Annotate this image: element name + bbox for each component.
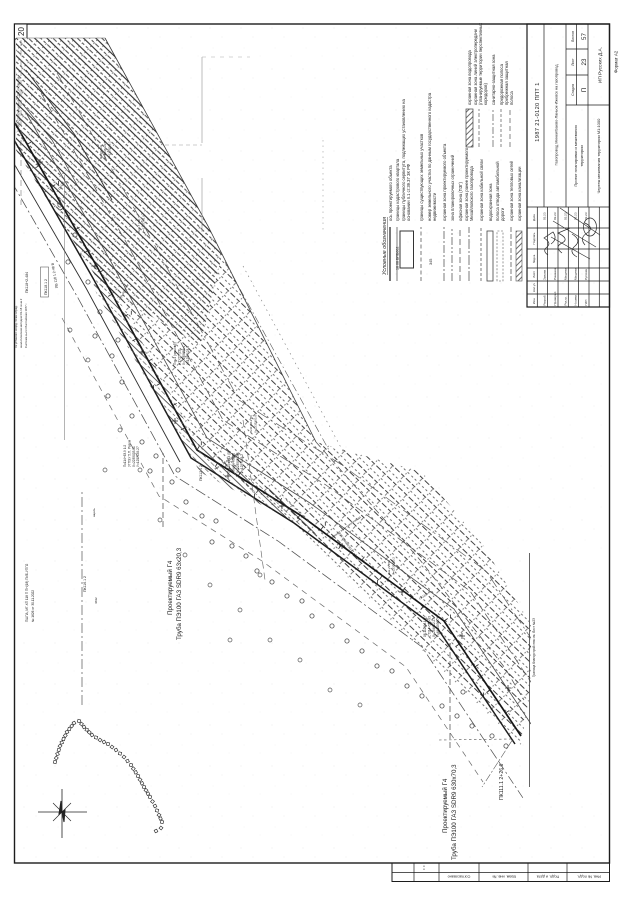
svg-text:П: П — [581, 88, 588, 92]
svg-text:недвижимости: недвижимости — [432, 192, 437, 221]
svg-text:Подпись: Подпись — [532, 232, 536, 244]
svg-text:границы существующих земельных: границы существующих земельных участков — [419, 133, 424, 221]
svg-text:345: 345 — [429, 259, 433, 265]
svg-text:Формат А2: Формат А2 — [614, 50, 619, 73]
svg-text:У=1257201.9: У=1257201.9 — [142, 215, 146, 233]
svg-text:Инв. № подл.: Инв. № подл. — [577, 875, 601, 879]
svg-text:Кол.уч: Кол.уч — [532, 283, 536, 292]
svg-text:4692: 4692 — [94, 597, 98, 604]
svg-text:дороги: дороги — [500, 207, 505, 221]
svg-text:06.112.04.1(2): 06.112.04.1(2) — [423, 617, 427, 638]
svg-text:Рук.гр.: Рук.гр. — [563, 296, 567, 305]
svg-text:03.23: 03.23 — [563, 212, 567, 220]
svg-text:Лист: Лист — [532, 271, 536, 278]
svg-text:03.23: 03.23 — [543, 212, 547, 220]
svg-text:Х=2235003.81: Х=2235003.81 — [236, 452, 240, 473]
svg-text:ащель: ащель — [92, 508, 96, 517]
svg-text:Изм.: Изм. — [532, 298, 536, 305]
svg-text:Дата: Дата — [532, 214, 536, 221]
svg-text:водоохранная зона: водоохранная зона — [488, 183, 493, 221]
svg-text:Условные обозначения: Условные обозначения — [382, 217, 388, 276]
svg-text:Русских: Русских — [584, 269, 588, 280]
svg-text:Х=2235003.81: Х=2235003.81 — [132, 446, 136, 467]
svg-text:№док.: №док. — [532, 254, 536, 263]
svg-text:Проверил: Проверил — [553, 291, 557, 305]
svg-text:Чертеж межевания территории М1: Чертеж межевания территории М1:1000 — [596, 118, 601, 193]
svg-text:СТ114+52 +93: СТ114+52 +93 — [427, 616, 431, 637]
svg-text:У=1257049.1: У=1257049.1 — [107, 141, 111, 159]
svg-text:Согласовано: Согласовано — [448, 875, 471, 879]
svg-text:Труба ПЭ100 ГАЗ SDR9 63х20,3: Труба ПЭ100 ГАЗ SDR9 63х20,3 — [176, 547, 183, 640]
svg-text:Пк113+12 (8): Пк113+12 (8) — [249, 415, 253, 433]
svg-text:Граница благоустройства см. Ли: Граница благоустройства см. Лист №23 — [532, 618, 536, 677]
svg-text:ПК111.1 2+26.6: ПК111.1 2+26.6 — [499, 763, 505, 800]
svg-text:У=1257123.8: У=1257123.8 — [186, 346, 190, 365]
svg-text:Михайловского газопровода: Михайловского газопровода — [469, 166, 474, 221]
svg-text:Проектируемый Г4: Проектируемый Г4 — [167, 560, 174, 615]
svg-text:НЗУ23 (23): НЗУ23 (23) — [177, 349, 181, 365]
svg-text:23: 23 — [581, 58, 588, 65]
svg-text:Пк117 (21): Пк117 (21) — [137, 219, 141, 233]
svg-text:охранная зона кабельной связи: охранная зона кабельной связи — [479, 159, 484, 221]
svg-text:Пк114+63.9 1:2: Пк114+63.9 1:2 — [123, 445, 127, 467]
svg-text:Газопровод Минеи/Баево-Ланьок-: Газопровод Минеи/Баево-Ланьок-Ижевск на … — [554, 64, 559, 166]
svg-text:УГПЭУ 5.П. Разем: УГПЭУ 5.П. Разем — [127, 440, 131, 467]
svg-text:ИП Русских Д.А.: ИП Русских Д.А. — [598, 47, 604, 83]
svg-text:Мацуева: Мацуева — [574, 267, 578, 280]
svg-text:Система высот Балтийская 1977: Система высот Балтийская 1977 г. — [24, 303, 28, 348]
svg-text:ПК116.1 2: ПК116.1 2 — [83, 576, 87, 592]
svg-text:57: 57 — [581, 33, 588, 40]
svg-text:У=1257149.2: У=1257149.2 — [240, 454, 244, 473]
svg-text:ПК118+2-484: ПК118+2-484 — [25, 272, 29, 293]
svg-text:охранная зона канализации: охранная зона канализации — [517, 166, 522, 221]
svg-text:Проект планировки и межевания: Проект планировки и межевания — [573, 125, 578, 186]
svg-text:ПК118.1 2: ПК118.1 2 — [44, 279, 48, 295]
svg-text:охранная зона тепловых сетей: охранная зона тепловых сетей — [509, 160, 514, 221]
svg-text:03.23: 03.23 — [553, 212, 557, 220]
svg-text:Зыкова: Зыкова — [543, 269, 547, 280]
svg-text:охранная зона проектируемого о: охранная зона проектируемого объекта — [442, 143, 447, 221]
svg-text:У=6480936.76: У=6480936.76 — [436, 616, 440, 637]
svg-text:Стадия: Стадия — [571, 84, 575, 96]
svg-text:ГИП: ГИП — [584, 300, 588, 306]
svg-text:18 08 ВПВ002: 18 08 ВПВ002 — [396, 247, 400, 270]
svg-text:ПШПА, МГ-КП 118 П ПН(18) ПИБ-У: ПШПА, МГ-КП 118 П ПН(18) ПИБ-УПП2 — [25, 563, 29, 622]
svg-text:зем.уч 456: зем.уч 456 — [387, 560, 391, 575]
svg-text:основании п.1 ст.39.37 ЗК РФ: основании п.1 ст.39.37 ЗК РФ — [406, 164, 411, 221]
svg-text:территории: территории — [579, 145, 584, 166]
svg-text:охранная зона водопровода: охранная зона водопровода — [467, 50, 472, 105]
svg-text:Романов: Романов — [553, 267, 557, 280]
svg-text:Подп. и дата: Подп. и дата — [536, 875, 559, 879]
svg-text:зем.уч 4632.2: зем.уч 4632.2 — [231, 453, 235, 473]
svg-text:Н.контр.: Н.контр. — [574, 294, 578, 306]
svg-text:зона планировочных ограничений: зона планировочных ограничений — [450, 154, 455, 221]
svg-text:Проектируемый Г4: Проектируемый Г4 — [442, 778, 449, 833]
svg-text:Поз.4 (зем.№5): Поз.4 (зем.№5) — [173, 342, 177, 365]
svg-text:Пк114 поз.4 (5): Пк114 поз.4 (5) — [227, 451, 231, 473]
svg-text:У=1257149.27: У=1257149.27 — [136, 446, 140, 467]
svg-text:Х=2235010.2: Х=2235010.2 — [392, 557, 396, 575]
svg-text:Х=2235103.6: Х=2235103.6 — [254, 415, 258, 433]
svg-text:Листов: Листов — [571, 31, 575, 42]
svg-text:полоса: полоса — [509, 91, 514, 105]
svg-text:Мацуева: Мацуева — [563, 267, 567, 280]
svg-text:аналитическим методом СК-18 зо: аналитическим методом СК-18 зона 2 — [19, 298, 23, 348]
svg-text:офисная зона (ПЗГ): офисная зона (ПЗГ) — [458, 182, 463, 221]
svg-text:санитарно-защитная зона: санитарно-защитная зона — [491, 54, 496, 105]
svg-text:ось проектируемого объекта: ось проектируемого объекта — [388, 165, 393, 221]
svg-text:Лист: Лист — [571, 58, 575, 66]
svg-text:Взам. инв. №: Взам. инв. № — [492, 875, 516, 879]
svg-text:Х=254662.27: Х=254662.27 — [432, 618, 436, 637]
svg-text:ПК112 1 2: ПК112 1 2 — [199, 465, 203, 481]
svg-text:границы кадастрового квартала: границы кадастрового квартала — [395, 158, 400, 221]
svg-text:1987 21-0120 ППТ 1: 1987 21-0120 ППТ 1 — [535, 82, 541, 141]
svg-text:Разраб.: Разраб. — [543, 295, 547, 306]
svg-text:20: 20 — [17, 27, 26, 36]
svg-text:№ 1626 от 30.11.2022: № 1626 от 30.11.2022 — [31, 590, 35, 622]
svg-text:ГИ-604 СОЛОМАННЫЕ СТВОЛ ОМ. ЛИ: ГИ-604 СОЛОМАННЫЕ СТВОЛ ОМ. ЛИ — [17, 77, 21, 132]
svg-text:коридоров): коридоров) — [483, 82, 488, 105]
svg-text:Х=2235608.4: Х=2235608.4 — [182, 346, 186, 365]
svg-text:Труба ПЭ100 ГАЗ SDR9 630х70,3: Труба ПЭ100 ГАЗ SDR9 630х70,3 — [451, 764, 458, 860]
